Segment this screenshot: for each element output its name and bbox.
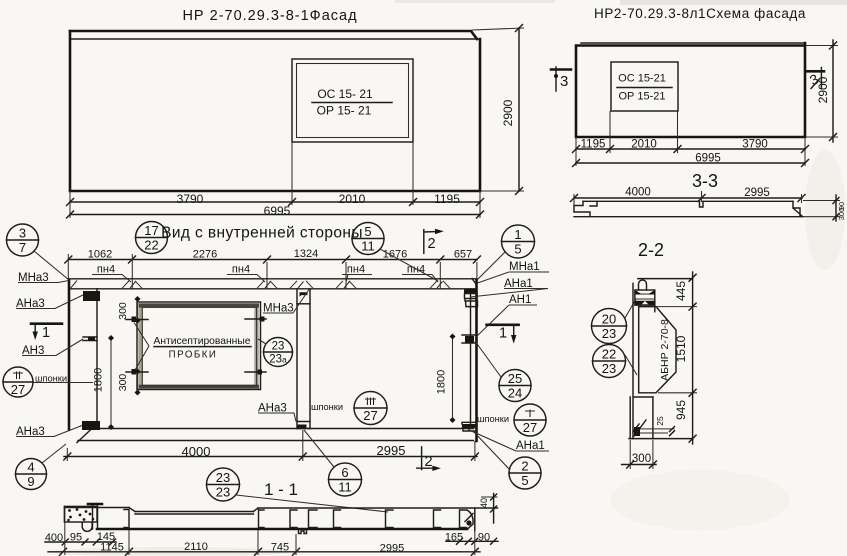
svg-text:1510: 1510 [674, 335, 688, 362]
svg-text:пн4: пн4 [232, 264, 250, 276]
svg-text:22: 22 [144, 238, 158, 253]
svg-text:ОР 15-21: ОР 15-21 [618, 91, 665, 103]
svg-text:23: 23 [602, 326, 616, 341]
svg-text:300: 300 [837, 208, 846, 221]
svg-text:1800: 1800 [93, 368, 105, 392]
svg-text:5: 5 [521, 473, 528, 488]
svg-text:3790: 3790 [177, 192, 204, 206]
svg-text:300: 300 [117, 374, 129, 392]
svg-text:27: 27 [523, 420, 537, 435]
svg-text:25: 25 [508, 371, 522, 386]
svg-text:27: 27 [363, 408, 377, 423]
svg-text:2900: 2900 [501, 99, 515, 126]
svg-text:2-2: 2-2 [638, 240, 664, 260]
svg-text:1324: 1324 [294, 248, 318, 260]
svg-text:2900: 2900 [816, 76, 830, 103]
svg-text:2110: 2110 [184, 541, 208, 553]
svg-text:25: 25 [655, 416, 665, 426]
svg-text:5: 5 [514, 242, 521, 257]
svg-text:1195: 1195 [434, 192, 460, 206]
svg-text:11: 11 [338, 480, 352, 495]
svg-text:1676: 1676 [383, 249, 407, 261]
svg-text:3-3: 3-3 [692, 171, 718, 191]
svg-text:23: 23 [272, 341, 285, 353]
svg-text:23: 23 [216, 485, 230, 500]
svg-text:ОС 15- 21: ОС 15- 21 [317, 87, 373, 101]
svg-text:657: 657 [454, 249, 472, 261]
svg-text:6: 6 [341, 465, 348, 480]
svg-text:АН1: АН1 [509, 294, 531, 306]
svg-text:23а: 23а [269, 354, 287, 366]
svg-text:9: 9 [27, 474, 34, 489]
svg-text:6995: 6995 [264, 204, 291, 218]
svg-text:300: 300 [117, 302, 129, 320]
svg-text:Антисептированные: Антисептированные [154, 336, 251, 347]
svg-text:ОР 15- 21: ОР 15- 21 [317, 104, 372, 118]
svg-text:2010: 2010 [631, 139, 657, 151]
svg-text:1145: 1145 [100, 542, 124, 554]
svg-text:165: 165 [445, 532, 463, 544]
svg-text:III: III [366, 396, 375, 408]
svg-text:23: 23 [216, 470, 230, 485]
svg-text:шпонки: шпонки [477, 414, 509, 424]
svg-text:I: I [528, 408, 531, 420]
svg-text:4000: 4000 [182, 444, 211, 459]
svg-text:6995: 6995 [695, 153, 721, 165]
svg-text:II: II [15, 370, 21, 382]
svg-text:Вид с внутренней стороны: Вид с внутренней стороны [161, 225, 363, 242]
svg-text:ПРОБКИ: ПРОБКИ [169, 350, 218, 361]
svg-text:3790: 3790 [742, 139, 768, 151]
svg-text:2995: 2995 [377, 443, 406, 458]
svg-text:2010: 2010 [339, 192, 366, 206]
svg-text:НР 2-70.29.3-8-1Фасад: НР 2-70.29.3-8-1Фасад [182, 8, 357, 24]
svg-text:11: 11 [361, 239, 375, 254]
svg-text:МНа1: МНа1 [509, 261, 540, 273]
svg-text:22: 22 [602, 347, 616, 362]
svg-text:445: 445 [674, 281, 688, 301]
svg-text:АНа1: АНа1 [516, 440, 545, 452]
svg-text:НР2-70.29.3-8л1Схема фасада: НР2-70.29.3-8л1Схема фасада [594, 6, 806, 21]
svg-text:7: 7 [19, 240, 26, 255]
svg-text:пн4: пн4 [347, 264, 365, 276]
svg-text:3: 3 [19, 226, 26, 241]
svg-text:27: 27 [11, 382, 25, 397]
svg-text:АБНР 2-70-8: АБНР 2-70-8 [659, 319, 671, 381]
svg-text:1: 1 [514, 227, 521, 242]
svg-text:2: 2 [521, 459, 528, 474]
svg-text:1: 1 [42, 325, 50, 341]
svg-text:1800: 1800 [436, 370, 448, 394]
svg-text:23: 23 [602, 361, 616, 376]
svg-text:1062: 1062 [88, 249, 112, 261]
svg-text:95: 95 [70, 532, 82, 544]
svg-text:4000: 4000 [625, 187, 651, 199]
svg-text:20: 20 [602, 312, 616, 327]
svg-text:90: 90 [478, 532, 490, 544]
svg-text:1 - 1: 1 - 1 [264, 480, 298, 499]
svg-text:400: 400 [45, 532, 63, 544]
svg-text:17: 17 [144, 223, 158, 238]
svg-text:40: 40 [479, 498, 489, 508]
svg-text:945: 945 [674, 400, 688, 420]
svg-text:745: 745 [271, 542, 289, 554]
svg-text:ОС 15-21: ОС 15-21 [618, 73, 666, 85]
svg-text:шпонки: шпонки [311, 402, 343, 412]
svg-text:4: 4 [27, 460, 34, 475]
svg-text:1: 1 [499, 326, 507, 342]
svg-text:2995: 2995 [380, 543, 404, 555]
svg-text:2: 2 [428, 236, 436, 252]
svg-text:3: 3 [560, 73, 568, 90]
svg-text:300: 300 [632, 453, 651, 465]
svg-text:2276: 2276 [193, 249, 217, 261]
svg-text:1195: 1195 [581, 139, 606, 151]
svg-text:пн4: пн4 [97, 264, 115, 276]
svg-text:5: 5 [364, 224, 371, 239]
svg-text:24: 24 [508, 386, 522, 401]
svg-text:2995: 2995 [744, 187, 770, 199]
